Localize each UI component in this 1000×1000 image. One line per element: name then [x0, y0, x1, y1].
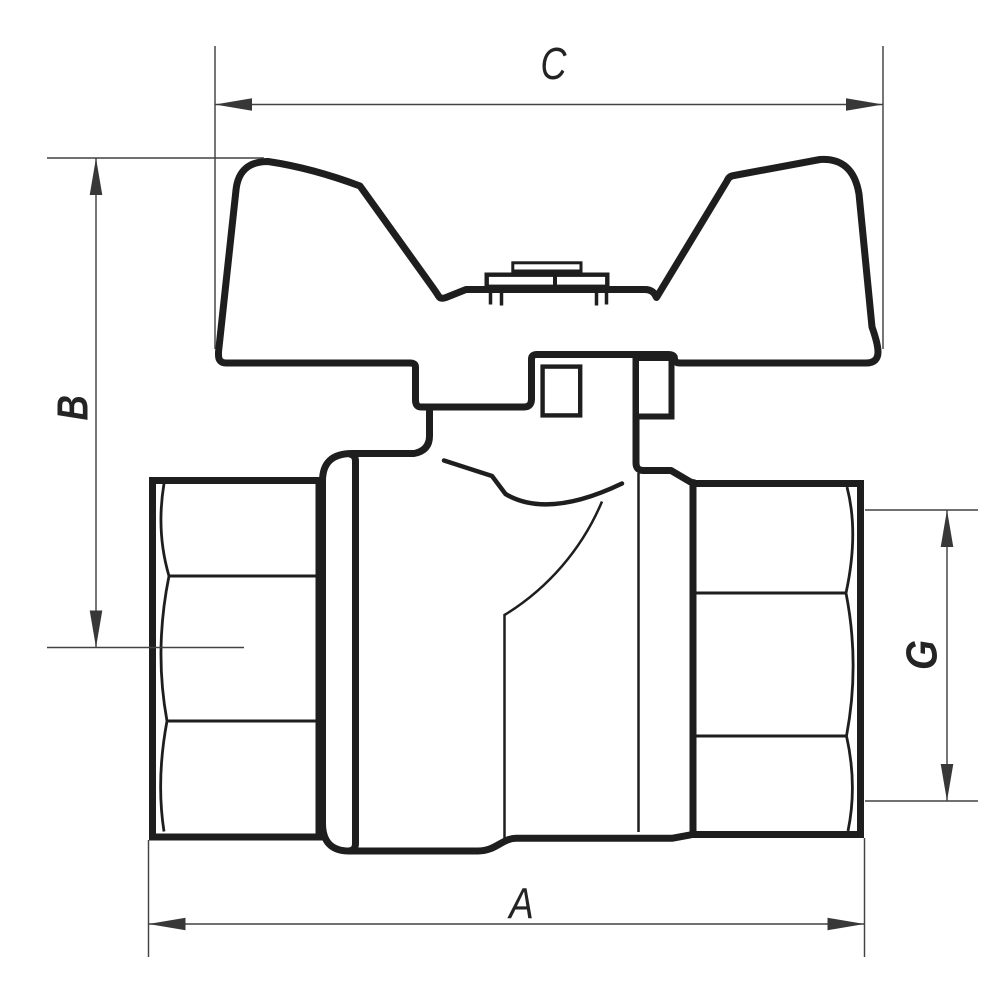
svg-text:G: G: [896, 640, 946, 670]
svg-text:B: B: [49, 395, 98, 420]
svg-text:C: C: [541, 38, 568, 89]
svg-text:A: A: [507, 878, 533, 928]
